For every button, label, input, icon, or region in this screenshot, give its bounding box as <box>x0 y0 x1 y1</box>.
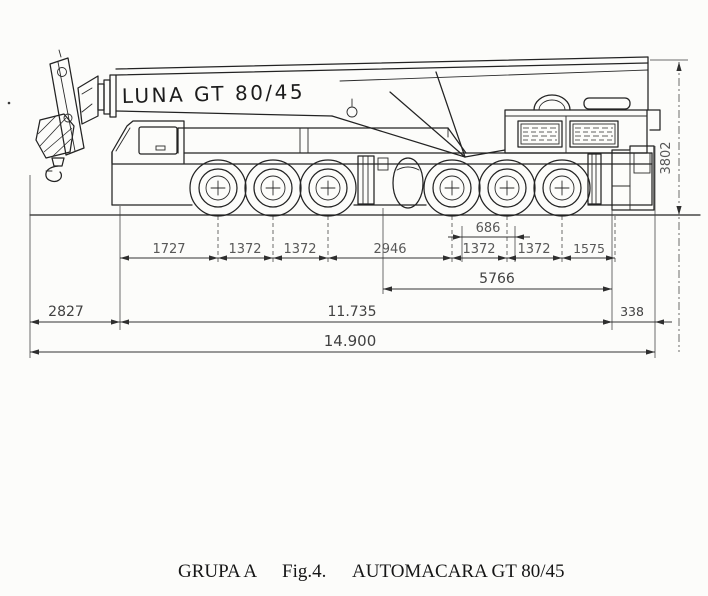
dim-label: 1372 <box>517 242 550 257</box>
dim-label: 5766 <box>479 271 515 287</box>
boom-head <box>50 50 116 155</box>
caption-figure: Fig.4. <box>282 561 326 582</box>
dimension-axle-row: 1727 1372 1372 2946 1372 1372 1575 <box>120 241 615 261</box>
carrier-chassis <box>112 128 652 205</box>
exhaust-muffler <box>584 98 630 109</box>
wheel <box>424 160 480 216</box>
dim-label: 2946 <box>373 242 406 257</box>
engine-housing <box>505 95 660 153</box>
wheel <box>479 160 535 216</box>
caption-title: AUTOMACARA GT 80/45 <box>352 561 565 582</box>
dim-label: 1372 <box>283 242 316 257</box>
dimension-row-overall: 2827 11.735 338 <box>30 304 672 325</box>
driver-cab <box>112 121 184 163</box>
wheel <box>245 160 301 216</box>
dim-label: 3802 <box>659 141 674 174</box>
boom-pin-hole <box>347 107 357 117</box>
telescopic-boom: LUNA GT 80/45 <box>116 57 648 157</box>
wheel <box>190 160 246 216</box>
wheel <box>534 160 590 216</box>
dim-label: 338 <box>620 304 644 319</box>
crane-technical-drawing: LUNA GT 80/45 <box>0 0 708 596</box>
dim-label: 14.900 <box>324 332 377 350</box>
wheel <box>300 160 356 216</box>
dim-label: 2827 <box>48 304 84 320</box>
rear-counterweight <box>588 146 654 210</box>
dimension-5766: 5766 <box>383 271 612 292</box>
dimension-total-length: 14.900 <box>30 332 655 355</box>
dim-label: 1727 <box>152 242 185 257</box>
dim-label: 11.735 <box>328 304 377 320</box>
door-handle <box>156 146 165 150</box>
hook-icon <box>46 166 62 181</box>
dim-label: 1372 <box>228 242 261 257</box>
sheave-pin-icon <box>58 68 67 77</box>
dimension-height: 3802 <box>659 62 682 215</box>
caption-group: GRUPA A <box>178 561 257 582</box>
vent-panel <box>518 121 562 147</box>
dim-label: 686 <box>476 221 501 236</box>
outrigger-pad <box>393 158 423 208</box>
boom-model-label: LUNA GT 80/45 <box>122 80 306 108</box>
figure-caption: GRUPA A Fig.4. AUTOMACARA GT 80/45 <box>178 561 565 582</box>
scan-speck <box>8 102 11 105</box>
hook-block <box>36 114 74 181</box>
wheels <box>190 160 590 216</box>
dimension-686: 686 <box>448 221 530 240</box>
dim-label: 1372 <box>462 242 495 257</box>
blueprint-page: LUNA GT 80/45 <box>0 0 708 596</box>
vent-panel <box>570 121 618 147</box>
dim-label: 1575 <box>573 241 605 256</box>
